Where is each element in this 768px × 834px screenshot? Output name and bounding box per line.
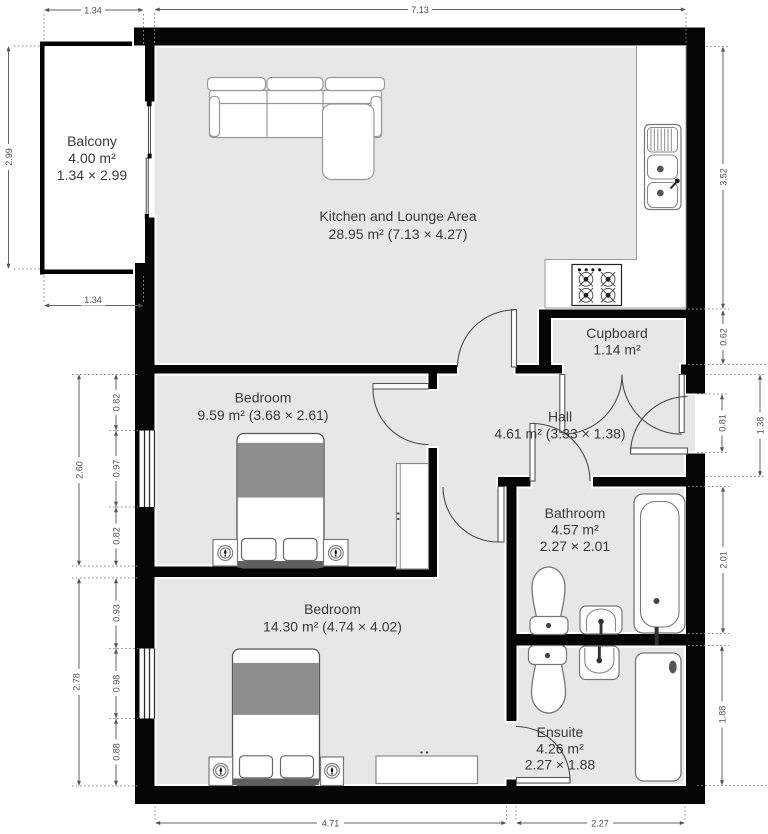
svg-text:4.00 m²: 4.00 m² <box>68 150 116 166</box>
svg-text:7.13: 7.13 <box>411 5 429 15</box>
svg-text:Bedroom: Bedroom <box>304 601 361 617</box>
svg-text:Bathroom: Bathroom <box>545 505 606 521</box>
svg-text:2.27: 2.27 <box>591 818 609 828</box>
svg-text:0.82: 0.82 <box>112 527 122 545</box>
svg-text:9.59 m² (3.68 × 2.61): 9.59 m² (3.68 × 2.61) <box>197 407 328 423</box>
svg-text:1.88: 1.88 <box>718 706 728 724</box>
svg-text:2.01: 2.01 <box>719 551 729 569</box>
svg-text:4.57 m²: 4.57 m² <box>551 522 599 538</box>
svg-text:Balcony: Balcony <box>67 133 117 149</box>
svg-text:Cupboard: Cupboard <box>586 325 648 341</box>
svg-text:1.34: 1.34 <box>84 295 102 305</box>
svg-text:Hall: Hall <box>548 409 572 425</box>
svg-text:2.78: 2.78 <box>72 673 82 691</box>
svg-text:14.30 m² (4.74 × 4.02): 14.30 m² (4.74 × 4.02) <box>263 619 402 635</box>
svg-text:0.93: 0.93 <box>112 604 122 622</box>
svg-text:0.98: 0.98 <box>112 675 122 693</box>
svg-text:0.88: 0.88 <box>112 743 122 761</box>
svg-text:2.27 × 1.88: 2.27 × 1.88 <box>525 757 596 773</box>
svg-text:2.27 × 2.01: 2.27 × 2.01 <box>540 538 611 554</box>
svg-text:1.34 × 2.99: 1.34 × 2.99 <box>57 167 128 183</box>
svg-text:0.97: 0.97 <box>112 460 122 478</box>
svg-text:Ensuite: Ensuite <box>537 724 584 740</box>
svg-text:2.99: 2.99 <box>4 148 14 166</box>
svg-text:1.14 m²: 1.14 m² <box>593 342 641 358</box>
svg-text:0.62: 0.62 <box>719 328 729 346</box>
svg-text:Kitchen and Lounge Area: Kitchen and Lounge Area <box>319 208 476 224</box>
svg-text:Bedroom: Bedroom <box>235 390 292 406</box>
svg-text:4.26 m²: 4.26 m² <box>536 741 584 757</box>
svg-text:4.61 m² (3.33 × 1.38): 4.61 m² (3.33 × 1.38) <box>494 426 625 442</box>
svg-text:1.38: 1.38 <box>756 417 766 435</box>
svg-text:3.52: 3.52 <box>719 168 729 186</box>
svg-text:0.81: 0.81 <box>718 414 728 432</box>
svg-text:4.71: 4.71 <box>322 818 340 828</box>
svg-text:28.95 m² (7.13 × 4.27): 28.95 m² (7.13 × 4.27) <box>329 226 468 242</box>
svg-text:0.82: 0.82 <box>112 394 122 412</box>
svg-text:1.34: 1.34 <box>84 5 102 15</box>
svg-text:2.60: 2.60 <box>75 461 85 479</box>
